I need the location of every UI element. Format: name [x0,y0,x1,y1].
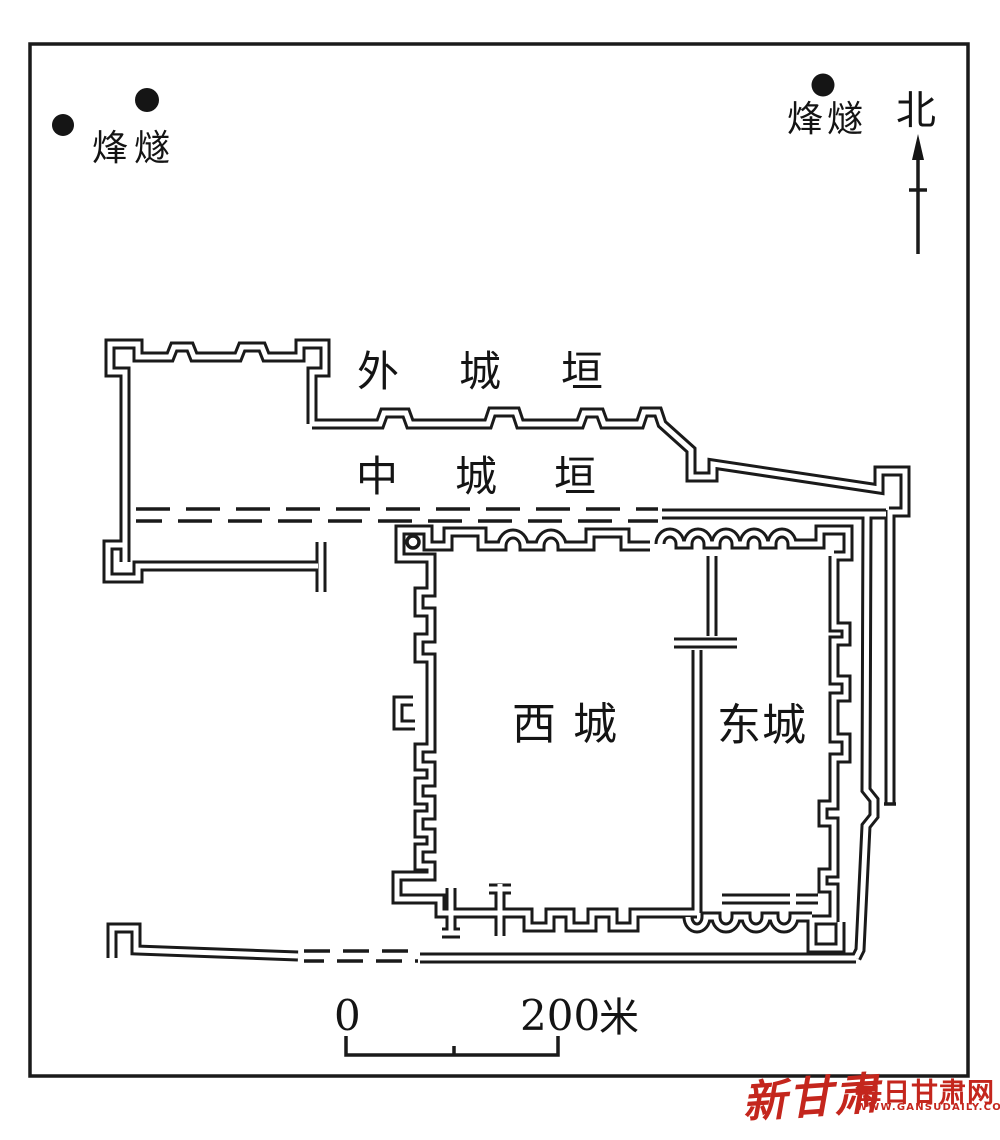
north-arrow-icon [909,134,927,254]
beacon-dot-icon [135,88,159,112]
beacon-dot-icon [52,114,74,136]
corner-tower-circle [407,536,419,548]
scale-max-label: 200 [520,995,600,1037]
watermark-site-url: WWW.GANSUDAILY.COM.CN [856,1102,1000,1113]
beacon-dot-icon [812,74,835,97]
north-label: 北 [896,91,936,131]
site-plan-figure: 烽燧 烽燧 北 外城垣 中城垣 西城 东城 0 200 米 新甘肃 每日甘肃网 … [0,0,1000,1140]
scale-zero-label: 0 [334,995,361,1037]
middle-wall-label: 中城垣 [356,456,653,498]
east-city-label: 东城 [717,704,807,748]
city-walls-hollow [108,344,905,958]
outer-wall-label: 外城垣 [357,351,663,393]
site-plan-drawing [0,0,1000,1140]
west-city-label: 西城 [512,703,634,747]
city-walls-outline [108,344,905,958]
scale-unit-label: 米 [599,998,639,1038]
beacon-label-right: 烽燧 [787,102,867,138]
beacon-label-left: 烽燧 [92,131,176,167]
